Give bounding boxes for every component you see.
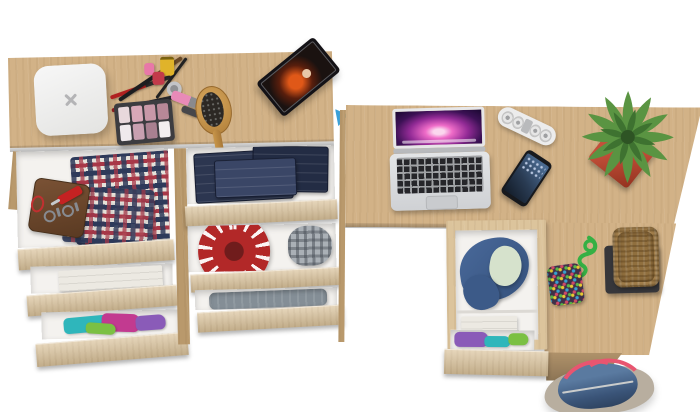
bathroom-scale [33, 63, 109, 137]
cabinet-drawer-interior [455, 230, 538, 341]
laptop-trackpad [426, 195, 458, 210]
lower-drawer-opening [450, 330, 534, 351]
eyeshadow-pan [145, 122, 157, 139]
drawer-open-shirts [16, 149, 170, 248]
nail-polish-red [152, 72, 164, 85]
desk [338, 105, 700, 388]
drawer-open-jeans [186, 145, 335, 204]
furniture-scene [0, 0, 700, 412]
eyeshadow-pan [157, 103, 169, 120]
eyeshadow-pan [133, 123, 145, 140]
laptop-screen [392, 106, 485, 149]
eyeshadow-pan [131, 105, 143, 122]
potted-plant [577, 87, 678, 188]
screen-dock [402, 139, 476, 144]
eyeshadow-pan [120, 124, 132, 141]
eyeshadow-pan [118, 106, 130, 123]
tshirt-green [85, 322, 116, 335]
dresser [8, 51, 338, 370]
drawer-divider [456, 310, 538, 314]
folded-jeans [214, 157, 297, 198]
tshirt-teal [484, 336, 510, 347]
key-icon [56, 207, 61, 216]
basket-opening [617, 232, 654, 283]
macbook-laptop [388, 106, 491, 211]
tshirt-purple [135, 314, 166, 331]
eyeshadow-pan [158, 121, 170, 138]
gray-plaid-cap [288, 225, 333, 266]
laptop-keyboard [397, 155, 484, 193]
red-hat [197, 223, 270, 272]
polka-dot-purse [546, 263, 585, 307]
plant-center [621, 130, 635, 144]
hat-center [212, 229, 256, 272]
tshirt-green [508, 333, 528, 345]
drawer-open-hats [188, 223, 337, 272]
tshirt-purple [454, 332, 488, 347]
drawer-front-rail [444, 349, 549, 377]
eyeshadow-palette [114, 99, 176, 146]
eyeshadow-pan [144, 104, 156, 121]
phone-app-icons [521, 156, 547, 180]
wicker-basket [612, 226, 660, 287]
